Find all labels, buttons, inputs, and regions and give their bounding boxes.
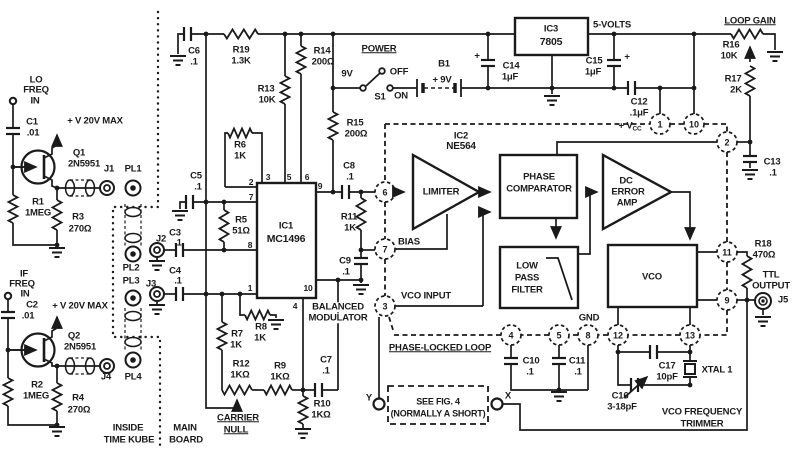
resistor-symbol	[224, 30, 258, 39]
capacitor-symbol	[628, 81, 635, 95]
ground-icon	[551, 392, 567, 401]
resistor-symbol	[299, 396, 308, 424]
pll-pin-number: 11	[722, 248, 732, 258]
junction-dot	[222, 200, 227, 205]
ground-icon	[49, 427, 65, 436]
resistor-symbol	[218, 322, 227, 350]
capacitor-symbol	[743, 156, 757, 162]
resistor-symbol	[4, 378, 13, 406]
jack-connector-icon	[100, 181, 114, 195]
junction-dot	[486, 32, 491, 37]
pll-pin-number: 1	[657, 120, 662, 130]
junction-dot	[658, 86, 663, 91]
see-fig4-box	[388, 386, 488, 424]
resistor-symbol	[222, 386, 252, 395]
resistor-symbol	[228, 129, 252, 138]
junction-dot	[331, 190, 336, 195]
ground-icon	[49, 248, 65, 257]
limiter-triangle	[413, 155, 479, 229]
pll-pin-number: 6	[382, 188, 387, 198]
capacitor-symbol	[176, 243, 183, 257]
ground-icon	[149, 305, 165, 314]
low-pass-filter-box	[500, 247, 578, 308]
pll-pin-12: 12	[608, 325, 628, 345]
junction-dot	[748, 140, 753, 145]
ic1-box	[257, 183, 316, 298]
junction-dot	[688, 350, 693, 355]
pll-pin-number: 4	[508, 331, 513, 341]
board-boundary-dotted-line	[113, 12, 160, 449]
cable-shield-icon	[125, 208, 141, 217]
junction-dot	[359, 248, 364, 253]
crystal-icon	[683, 361, 697, 377]
pll-pin-7: 7	[375, 239, 395, 259]
ground-icon	[353, 285, 369, 294]
capacitor-symbol	[6, 128, 20, 134]
resistor-symbol	[245, 311, 270, 320]
resistor-symbol	[220, 210, 229, 242]
junction-dot	[486, 86, 491, 91]
junction-dot	[204, 200, 209, 205]
schematic-page: 67345812131192110 LOFREQINC1.01+ V 20V M…	[0, 0, 800, 463]
capacitor-symbol	[342, 185, 349, 199]
junction-dot	[222, 248, 227, 253]
pll-pin-9: 9	[717, 290, 737, 310]
pll-pin-number: 10	[689, 120, 699, 130]
pll-pin-5: 5	[549, 325, 569, 345]
pll-pin-number: 12	[613, 331, 623, 341]
cable-shield-icon	[125, 338, 141, 347]
junction-dot	[616, 350, 621, 355]
vco-box	[608, 245, 697, 307]
junction-dot	[55, 364, 60, 369]
pll-pin-13: 13	[680, 325, 700, 345]
resistor-symbol	[53, 200, 62, 230]
capacitor-symbol	[176, 287, 183, 301]
junction-dot	[692, 86, 697, 91]
plug-connector-icon	[126, 291, 141, 306]
resistor-symbol	[297, 46, 306, 74]
junction-dot	[331, 86, 336, 91]
pll-pin-3: 3	[375, 296, 395, 316]
capacitor-symbol	[184, 27, 191, 41]
junction-dot	[612, 86, 617, 91]
resistor-symbol	[357, 198, 366, 230]
ground-icon	[172, 211, 188, 220]
j5-connector-icon	[755, 293, 771, 309]
pll-pin-number: 8	[585, 331, 590, 341]
junction-dot	[55, 423, 60, 428]
resistor-symbol	[329, 112, 338, 140]
pll-pin-number: 3	[382, 302, 387, 312]
capacitor-symbol	[354, 258, 368, 264]
pll-pin-6: 6	[375, 182, 395, 202]
junction-dot	[557, 388, 562, 393]
junction-dot	[359, 278, 364, 283]
junction-dot	[220, 292, 225, 297]
junction-dot	[55, 186, 60, 191]
junction-dot	[204, 292, 209, 297]
schematic-canvas: 67345812131192110	[0, 0, 800, 463]
input-terminal-icon	[10, 98, 16, 104]
cable-shield-icon	[125, 234, 141, 243]
pll-pin-number: 7	[382, 245, 387, 255]
capacitor-symbol	[650, 345, 657, 359]
wire-layer	[8, 34, 775, 430]
junction-dot	[299, 32, 304, 37]
plug-connector-icon	[126, 247, 141, 262]
pll-pin-10: 10	[684, 114, 704, 134]
resistor-symbol	[264, 386, 292, 395]
ground-icon	[755, 317, 771, 326]
junction-dot	[204, 32, 209, 37]
resistor-symbol	[281, 76, 290, 104]
plug-connector-icon	[126, 353, 141, 368]
capacitor-symbol	[607, 60, 621, 66]
ground-icon	[295, 429, 311, 438]
ic3-box	[515, 18, 588, 55]
pll-pin-number: 2	[724, 138, 729, 148]
component-symbol-layer	[1, 18, 783, 438]
plug-connector-icon	[126, 181, 141, 196]
pll-pin-4: 4	[501, 325, 521, 345]
resistor-symbol	[53, 383, 62, 411]
capacitor-symbol	[186, 195, 193, 209]
ground-icon	[170, 56, 186, 65]
capacitor-symbol	[315, 383, 322, 397]
cable-shield-icon	[125, 312, 141, 321]
ground-icon	[544, 96, 560, 105]
junction-dot	[301, 388, 306, 393]
junction-dot	[359, 190, 364, 195]
resistor-symbol	[746, 66, 755, 96]
jack-connector-icon	[100, 359, 114, 373]
junction-dot	[283, 32, 288, 37]
junction-dot	[55, 243, 60, 248]
pll-pin-number: 13	[685, 331, 695, 341]
capacitor-symbol	[481, 60, 495, 66]
power-switch-icon	[360, 68, 393, 91]
pll-pin-2: 2	[717, 132, 737, 152]
resistor-symbol	[743, 256, 752, 288]
phase-comparator-box	[500, 155, 577, 218]
input-terminal-icon	[5, 293, 11, 299]
test-point-icon	[492, 399, 503, 410]
junction-dot	[612, 32, 617, 37]
junction-dot	[238, 292, 243, 297]
pll-pin-number: 5	[556, 331, 561, 341]
junction-dot	[745, 298, 750, 303]
pll-pin-8: 8	[578, 325, 598, 345]
test-point-icon	[374, 399, 385, 410]
capacitor-symbol	[552, 358, 566, 364]
junction-dot	[336, 278, 341, 283]
pll-pin-number: 9	[724, 296, 729, 306]
dashed-line-layer	[70, 12, 727, 449]
junction-dot	[331, 32, 336, 37]
pll-pin-11: 11	[717, 242, 737, 262]
capacitor-symbol	[504, 358, 518, 364]
ground-icon	[268, 320, 284, 329]
arrow-icon	[624, 377, 647, 398]
dc-error-amp-triangle	[603, 155, 671, 229]
resistor-symbol	[9, 195, 18, 223]
ground-icon	[767, 52, 783, 61]
junction-dot	[688, 383, 693, 388]
junction-dot	[692, 32, 697, 37]
resistor-symbol	[731, 30, 763, 39]
ground-icon	[742, 170, 758, 179]
jack-connector-icon	[150, 243, 164, 257]
ground-icon	[149, 261, 165, 270]
pll-pin-1: 1	[650, 114, 670, 134]
capacitor-symbol	[1, 312, 15, 318]
jack-connector-icon	[150, 287, 164, 301]
junction-dot	[550, 86, 555, 91]
